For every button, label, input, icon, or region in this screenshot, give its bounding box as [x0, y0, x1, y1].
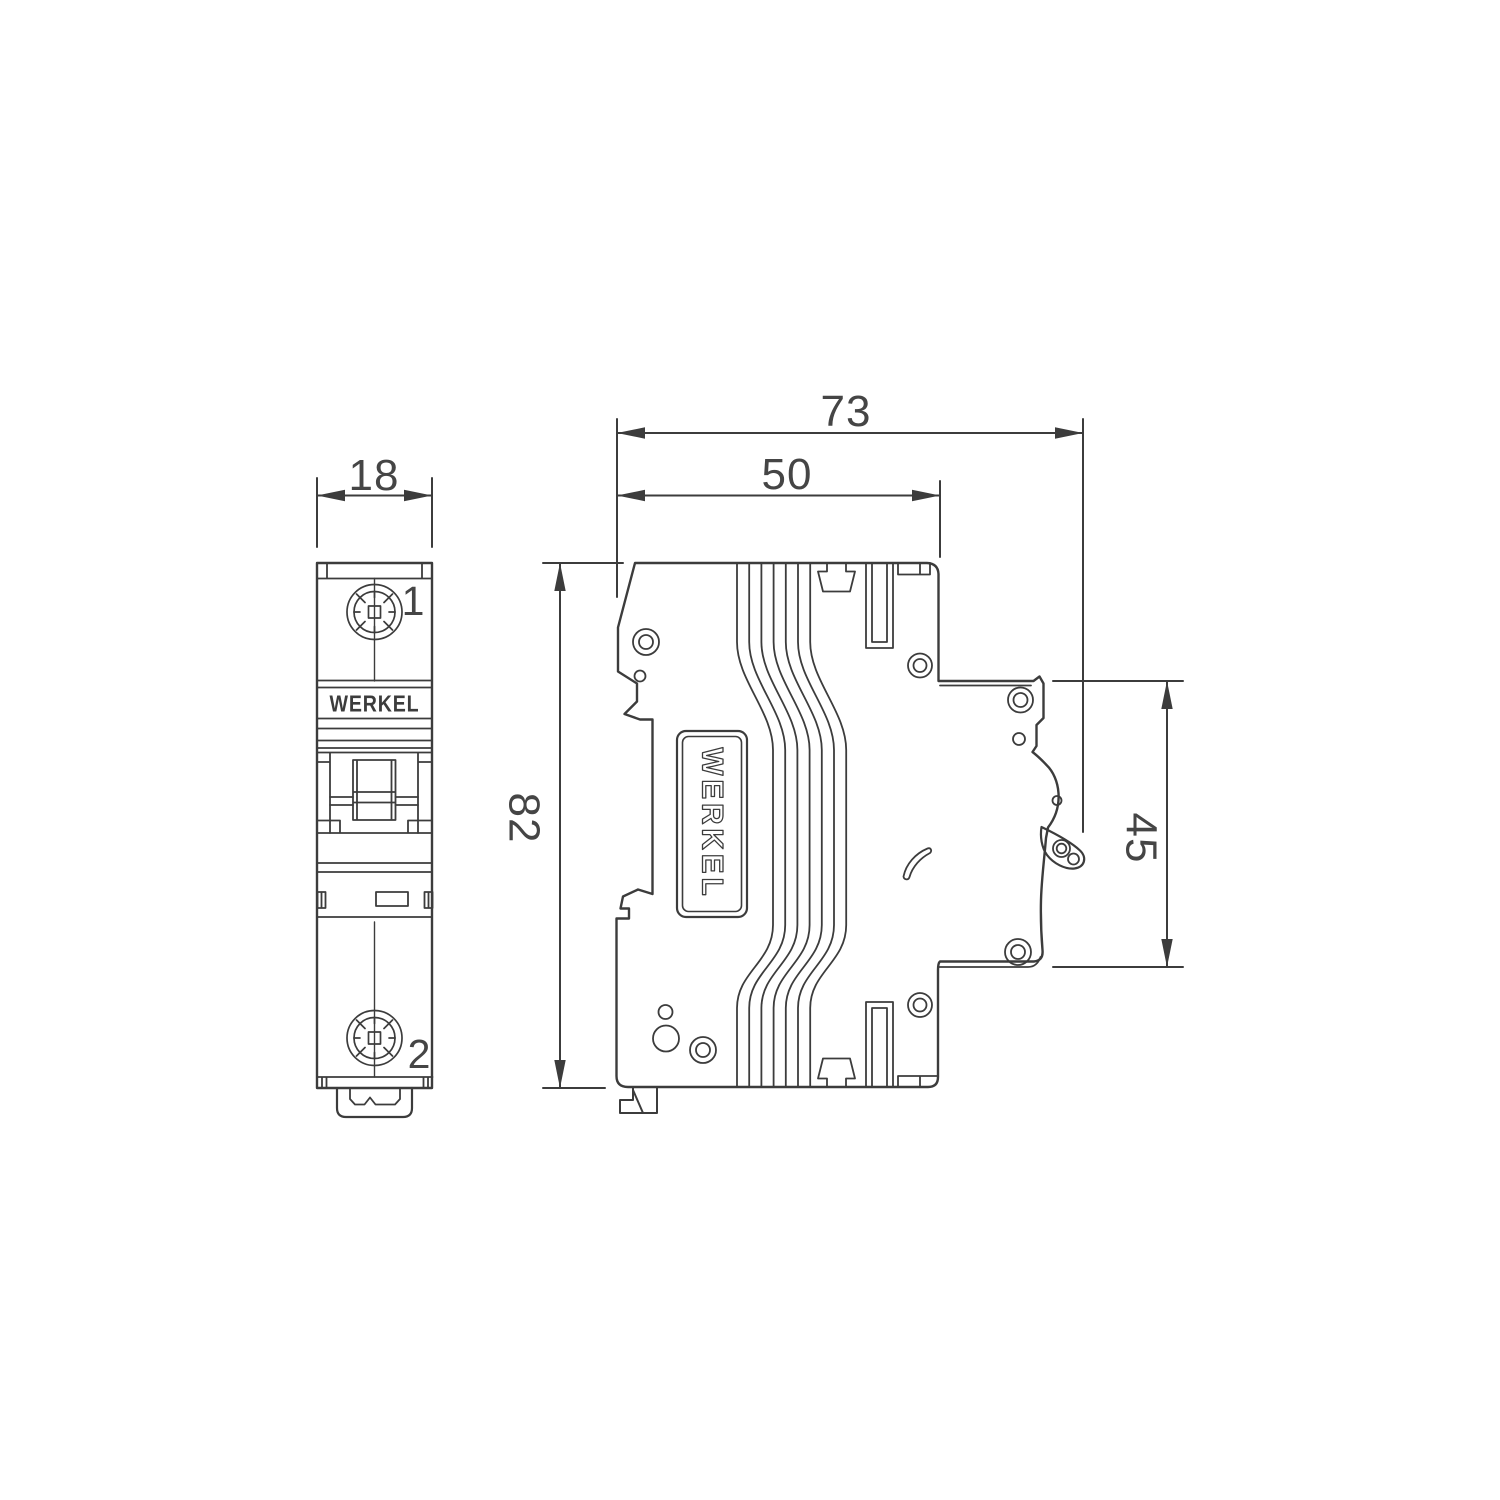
technical-drawing: 1 WERKEL 2 [0, 0, 1500, 1500]
dim-45-value: 45 [1117, 813, 1166, 864]
terminal-label-2: 2 [408, 1031, 431, 1077]
dim-50-value: 50 [762, 450, 813, 499]
terminal-label-1: 1 [402, 578, 425, 624]
dim-18-value: 18 [349, 451, 400, 500]
background [0, 0, 1500, 1500]
dim-73-value: 73 [821, 387, 872, 436]
werkel-logo-front: WERKEL [330, 691, 420, 717]
werkel-logo-side-text: WERKEL [696, 748, 729, 900]
drawing-canvas: 1 WERKEL 2 [0, 0, 1500, 1500]
dim-82-value: 82 [500, 793, 549, 844]
